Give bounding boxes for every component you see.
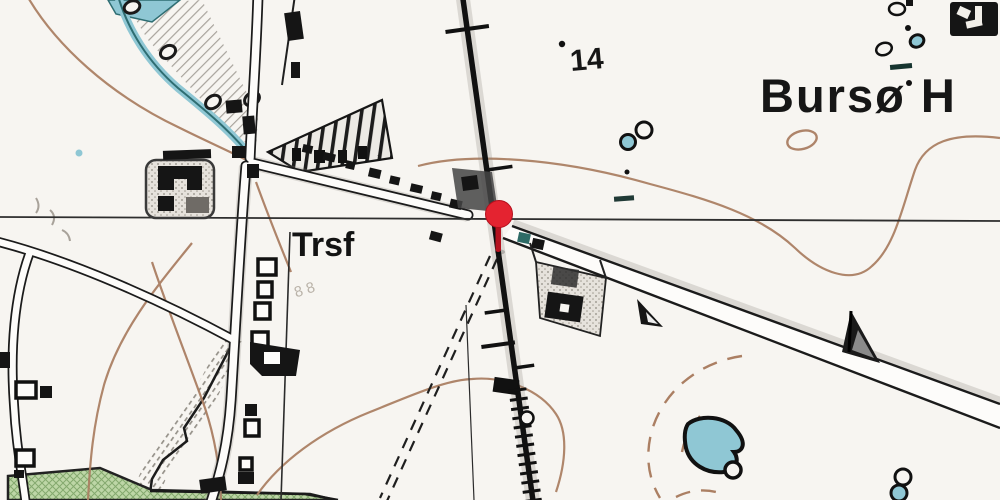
elevation-label: 14 xyxy=(569,42,605,78)
transformer-label: Trsf xyxy=(292,226,355,264)
place-name-label: Bursø H xyxy=(760,69,957,122)
map-canvas[interactable]: Bursø H 14 Trsf 8 8 xyxy=(0,0,1000,500)
railway-culvert-ring xyxy=(521,412,534,425)
farm-plot-west xyxy=(146,149,214,218)
